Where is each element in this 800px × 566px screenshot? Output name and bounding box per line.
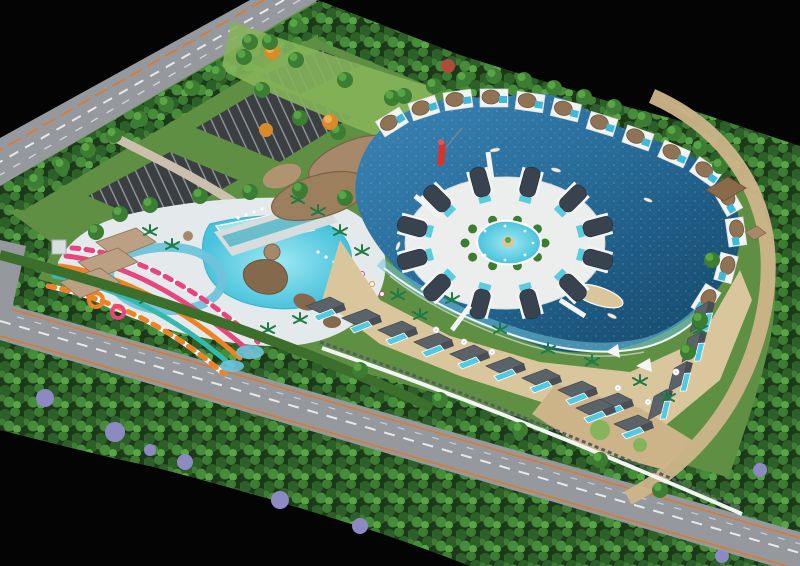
rendering-stage: Resort water-park master plan — aerial 3… (0, 0, 800, 566)
masterplan-rendering: Resort water-park master plan — aerial 3… (0, 0, 800, 566)
slide-tower (52, 240, 66, 254)
overwater-villa (480, 89, 508, 107)
pool-bar (264, 244, 280, 260)
overwater-villa (443, 89, 473, 111)
overwater-villa (515, 91, 545, 113)
splash-pool (236, 345, 264, 359)
overwater-villa (725, 217, 747, 247)
